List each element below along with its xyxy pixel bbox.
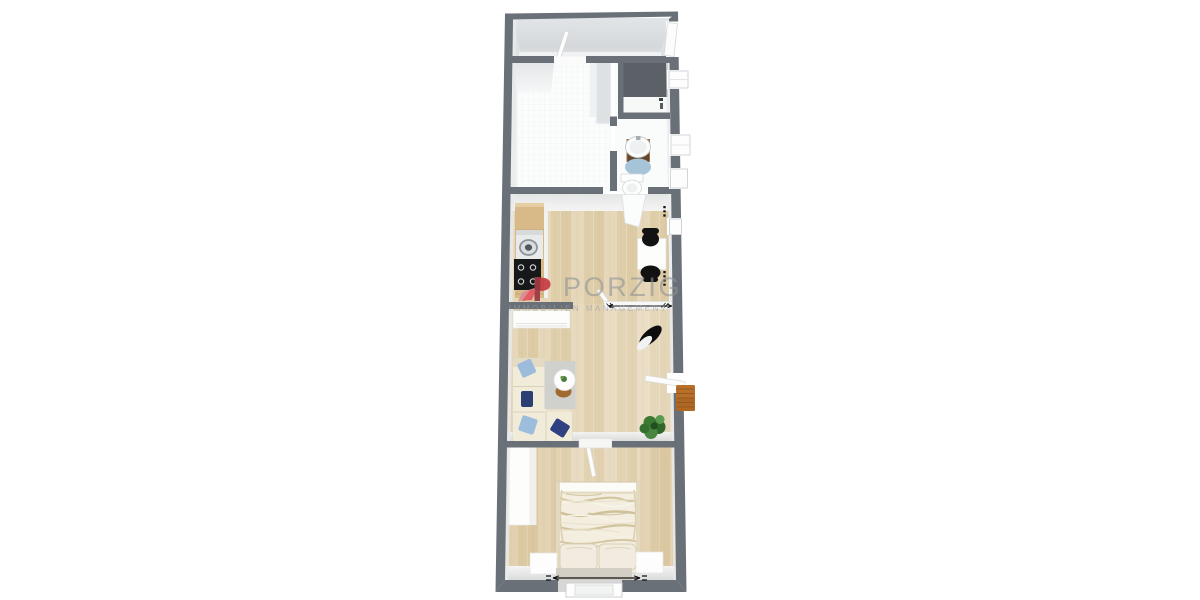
svg-text:PORZIG: PORZIG <box>563 272 682 302</box>
svg-text:IMMOBILIEN MANAGEMENT: IMMOBILIEN MANAGEMENT <box>509 304 668 313</box>
